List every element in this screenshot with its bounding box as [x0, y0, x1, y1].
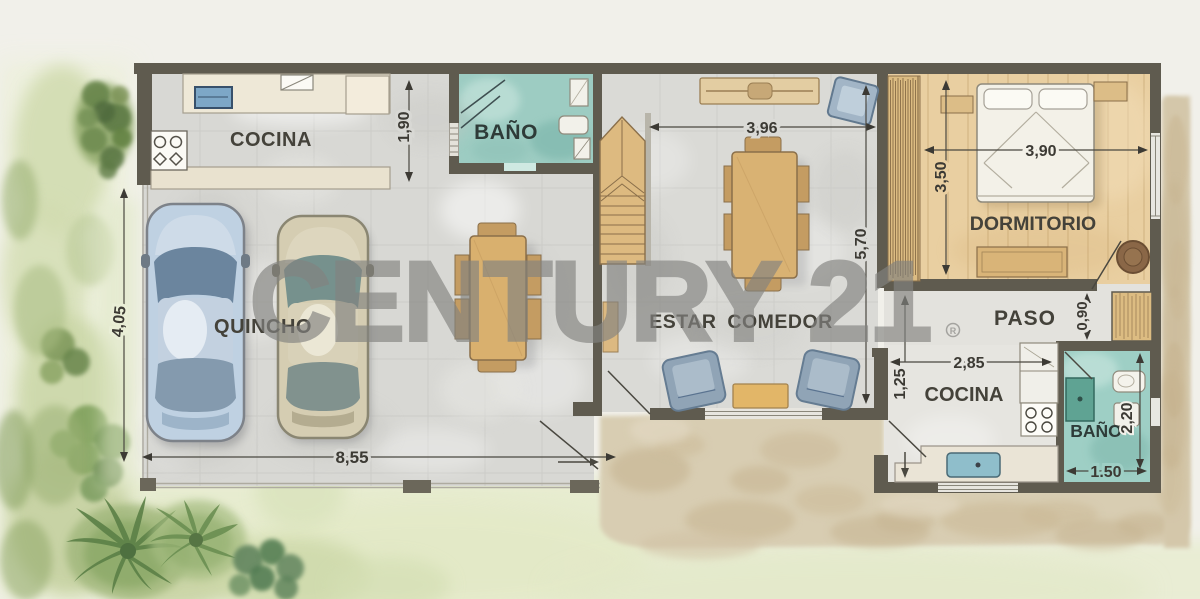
svg-text:2,20: 2,20: [1119, 402, 1136, 433]
svg-text:BAÑO: BAÑO: [474, 121, 538, 144]
svg-text:1,25: 1,25: [892, 368, 909, 399]
svg-text:3,50: 3,50: [933, 161, 950, 192]
svg-text:COCINA: COCINA: [230, 129, 312, 151]
svg-text:0,90: 0,90: [1074, 301, 1091, 330]
svg-text:1,90: 1,90: [396, 111, 413, 142]
svg-text:1.50: 1.50: [1090, 464, 1121, 481]
svg-text:COCINA: COCINA: [925, 384, 1004, 406]
svg-text:CENTURY 21: CENTURY 21: [250, 239, 931, 364]
svg-text:4,05: 4,05: [109, 305, 129, 338]
svg-text:BAÑO: BAÑO: [1070, 420, 1122, 441]
svg-text:8,55: 8,55: [335, 448, 368, 467]
svg-text:2,85: 2,85: [953, 355, 984, 372]
svg-text:R: R: [950, 326, 957, 336]
svg-text:3,90: 3,90: [1025, 143, 1056, 160]
svg-text:3,96: 3,96: [746, 120, 777, 137]
svg-text:PASO: PASO: [994, 307, 1056, 330]
svg-text:DORMITORIO: DORMITORIO: [970, 213, 1096, 235]
